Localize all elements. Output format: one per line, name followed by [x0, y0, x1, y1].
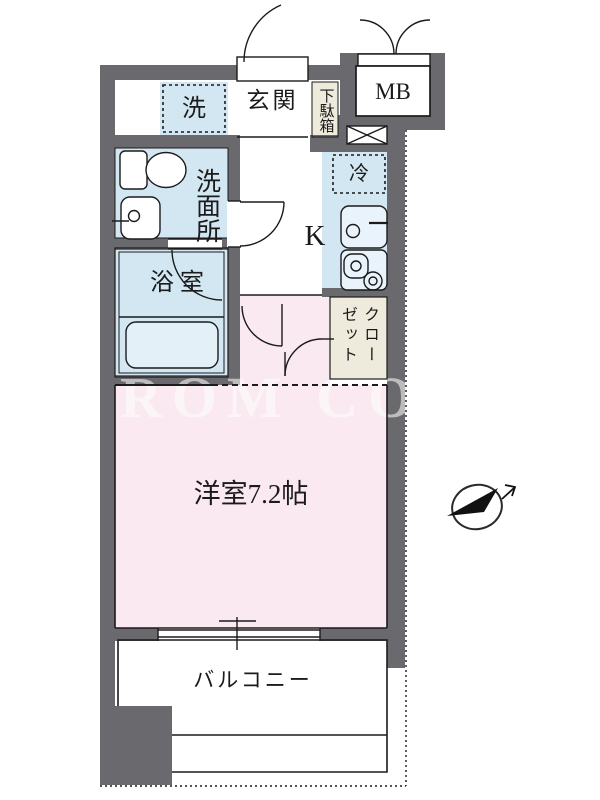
entrance-door-sill	[237, 57, 308, 81]
stove-icon	[341, 250, 387, 290]
washbasin-icon	[112, 197, 160, 239]
entrance-door-arc	[244, 5, 281, 62]
room-label-washroom: 洗面所	[189, 158, 223, 252]
bathtub-icon	[126, 322, 218, 368]
mb-door-sill	[358, 54, 430, 66]
vestibule-door-arcs	[240, 295, 334, 376]
room-label-bathroom: 浴室	[140, 268, 220, 298]
floorplan: ROM COR	[0, 0, 600, 800]
room-label-closet: クローゼット	[334, 303, 382, 369]
room-label-western-room: 洋室7.2帖	[115, 476, 387, 512]
room-label-meter-box: MB	[356, 66, 430, 116]
north-arrow-icon	[447, 480, 515, 535]
room-label-refrigerator: 冷	[333, 155, 385, 193]
hall-door-sill	[227, 201, 241, 247]
room-label-entrance: 玄関	[237, 84, 308, 116]
room-label-washer: 洗	[160, 82, 228, 135]
mb-door-arc-left	[360, 20, 394, 54]
hall-door-arc	[240, 202, 284, 246]
kitchen-sink-icon	[341, 206, 388, 248]
room-label-kitchen: K	[300, 218, 330, 254]
mb-door-arc-right	[396, 20, 430, 54]
toilet-icon	[120, 151, 186, 189]
balcony-outline	[118, 640, 387, 772]
crossed-box-icon	[347, 126, 387, 144]
window-symbol	[158, 617, 320, 650]
room-label-shoe-cabinet: 下駄箱	[313, 83, 337, 137]
room-label-balcony: バルコニー	[118, 666, 388, 694]
